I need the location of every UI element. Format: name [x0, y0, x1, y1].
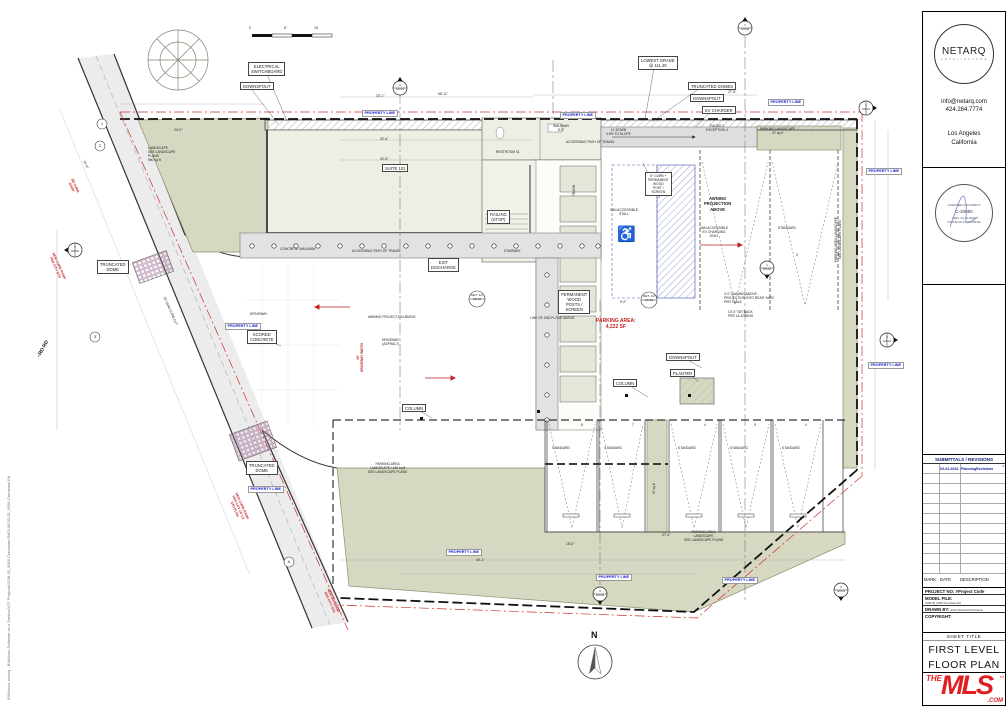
submittal-row-empty	[923, 514, 1005, 524]
firm-state: California	[923, 139, 1005, 147]
label-walkway: WALKWAY 8'-0"	[553, 124, 569, 132]
label-concrete-walkway: CONCRETE WALKWAY	[280, 247, 316, 251]
stall-count-7: 7	[632, 423, 634, 427]
firm-subtitle: A R C H I T E C T U R E	[941, 58, 987, 61]
label-landscape-960: LANDSCAPE SEE LANDSCAPE PLANS 960 sq ft	[148, 146, 175, 162]
mls-com: .COM	[987, 698, 1003, 704]
sheet-title-line1: FIRST LEVEL	[923, 643, 1005, 659]
label-standard-b4: STANDARD	[730, 446, 748, 450]
grid-bubble-1: 1	[98, 121, 106, 126]
firm-box: NETARQ A R C H I T E C T U R E info@neta…	[922, 11, 1006, 169]
label-exit-discharge: EXIT DISCHARGE	[428, 258, 459, 272]
label-parking-landscape-bottom: PARKING AREA LANDSCAPE SEE LANDSCAPE PLA…	[684, 530, 723, 542]
label-property-line-8: PROPERTY LINE	[596, 574, 632, 581]
marker-a402-top: 1 A4.02	[733, 24, 757, 31]
dim-32-5: 32'-5"	[380, 157, 388, 161]
label-property-line-6: PROPERTY LINE	[248, 486, 284, 493]
project-info-box: PROJECT NO: #Project Code MODEL FILE: 21…	[922, 587, 1006, 633]
label-driveway-width: 26' DRIVEWAY WIDTH	[356, 343, 364, 372]
label-downspout-3: DOWNSPOUT	[666, 353, 700, 361]
label-awning-note: 4'-0" AWNING ABOVE : PROJECTION INTO REA…	[724, 292, 774, 304]
drawing-sheet: { "file_path": "BIMcloud: netarq - BIMcl…	[0, 0, 1008, 720]
dim-18-6: 18'-6"	[566, 542, 574, 546]
scale-8: 8'	[284, 26, 286, 30]
submittal-row-empty	[923, 484, 1005, 494]
scale-16: 16'	[314, 26, 318, 30]
label-property-line-3: PROPERTY LINE	[768, 99, 804, 106]
marker-a301b: 3 A3.01	[829, 586, 853, 593]
mls-the: THE	[926, 674, 942, 683]
notes-box	[922, 284, 1006, 456]
submittal-row-empty	[923, 544, 1005, 554]
submittal-row-empty	[923, 494, 1005, 504]
firm-phone: 424.284.7774	[923, 106, 1005, 114]
label-driveway-asphalt: DRIVEWAY (ASPHALT)	[382, 338, 399, 346]
dim-27-8: 27'-8"	[728, 90, 736, 94]
label-line-2nd-floor: LINE OF 2ND FLOOR ABOVE	[530, 316, 575, 320]
label-property-line-1: PROPERTY LINE	[362, 110, 398, 117]
submittal-row-empty	[923, 504, 1005, 514]
stamp-signature	[930, 177, 996, 247]
label-driveway: DRIVEWAY	[250, 312, 267, 316]
marker-a302: 1 A3.02	[63, 246, 87, 253]
dim-40-1: 40'-1"	[476, 558, 484, 562]
label-downspout-1: DOWNSPOUT	[240, 82, 274, 90]
label-truncated-dome-left: TRUNCATED DOME	[97, 260, 129, 274]
marker-det-2: DET. 1/2 A5.12	[465, 294, 489, 301]
label-awning-projection: AWNING PROJECTION ABOVE	[704, 196, 731, 212]
label-truncated-dome-bottom: TRUNCATED DOME	[246, 461, 278, 475]
label-parking-landscape-440: PARKING AREA LANDSCAPE / 440 sq ft SEE L…	[368, 462, 407, 474]
label-trash: TRASH	[572, 185, 576, 196]
firm-name: NETARQ	[942, 46, 986, 57]
stamp-box: LICENSED ARCHITECT C-33080 REN. 12-31-20…	[922, 167, 1006, 285]
label-downspout-2: DOWNSPOUT	[690, 94, 724, 102]
grid-bubble-2: 2	[96, 143, 104, 148]
label-standard-right: STANDARD	[778, 226, 796, 230]
submittals-box: SUBMITTALS / REVISIONS 03-04-2024 Planni…	[922, 454, 1006, 588]
label-stairway: STAIRWAY	[504, 249, 521, 253]
drawn-by-label: DRAWN BY:	[925, 607, 950, 612]
label-lowest-grade: LOWEST GRADE @ 111.40	[638, 56, 678, 70]
label-ev-charger: EV CHARGER	[702, 106, 736, 114]
dim-9-0: 9'-0"	[620, 300, 627, 304]
firm-logo: NETARQ A R C H I T E C T U R E	[934, 24, 994, 84]
label-parking-landscape-vert: PARKING AREA LANDSCAPE SEE LANDSCAPE PLA…	[834, 217, 842, 262]
submittal-date: 03-04-2024	[940, 464, 961, 473]
label-standard-b2: STANDARD	[604, 446, 622, 450]
firm-city: Los Angeles	[923, 130, 1005, 138]
label-standard-b3: STANDARD	[678, 446, 696, 450]
model-file-label: MODEL FILE:	[925, 596, 952, 601]
copyright-label: COPYRIGHT:	[923, 613, 1005, 619]
col-description: DESCRIPTION	[960, 577, 989, 582]
marker-a301: 1 A3.01	[854, 104, 878, 111]
label-property-line-5: PROPERTY LINE	[868, 362, 904, 369]
mls-text: MLS	[941, 670, 992, 701]
label-scored-concrete: SCORED CONCRETE	[247, 330, 277, 344]
col-mark: MARK	[923, 577, 940, 582]
label-property-line-9: PROPERTY LINE	[722, 577, 758, 584]
col-date: DATE	[940, 577, 960, 582]
file-path-text: BIMcloud: netarq - BIMcloud Software as …	[6, 476, 11, 700]
marker-a401: 1 A4.01	[388, 84, 412, 91]
label-down-ramp: 11' DOWN 4.9% TO SLOPE	[606, 128, 631, 136]
label-setback-note: 10'-0" SETBACK PER LA ZONING	[728, 310, 753, 318]
submittal-row-empty	[923, 534, 1005, 544]
grid-bubble-3: 3	[91, 334, 99, 339]
submittal-row-empty	[923, 554, 1005, 564]
grid-bubble-a: A	[285, 559, 293, 564]
label-column-1: COLUMN	[613, 379, 637, 387]
submittal-row: 03-04-2024 PlanningRevisions 1	[923, 464, 1005, 474]
submittal-row-empty	[923, 564, 1005, 574]
label-electrical-switchboard: ELECTRICAL SWITCHBOARD	[248, 62, 285, 76]
marker-a502: 1 A5.02	[755, 264, 779, 271]
label-property-line-10: PROPERTY LINE	[225, 323, 261, 330]
revision-mark: 1	[1002, 464, 1004, 468]
model-file-value: 2108.00_5066 Crenshaw Rd	[925, 601, 1003, 605]
dim-66-11: 66'-11"	[438, 92, 448, 96]
sheet-title-box: SHEET TITLE FIRST LEVEL FLOOR PLAN	[922, 632, 1006, 674]
stall-count-4: 4	[704, 423, 706, 427]
label-column-2: COLUMN	[402, 404, 426, 412]
submittal-row-empty	[923, 524, 1005, 534]
dim-47-4: 47'-4"	[662, 533, 670, 537]
label-standard-b1: STANDARD	[552, 446, 570, 450]
marker-det-1: DET. 1/2 A5.12	[637, 295, 661, 302]
marker-a402-bottom: 1 A4.02	[588, 590, 612, 597]
label-parking-area: PARKING AREA: 4,222 SF	[596, 318, 636, 331]
label-exception-note: F/A 200.1 EXCEPTION 4	[706, 124, 728, 132]
stall-count-8: 8	[581, 423, 583, 427]
stall-count-5: 5	[754, 423, 756, 427]
dim-32-6: 32'-6"	[380, 137, 388, 141]
label-permanent-wood: PERMANENT WOOD POSTS / SCREEN	[558, 290, 590, 314]
label-truncated-domes: TRUNCATED DOMES	[688, 82, 736, 90]
label-property-line-7: PROPERTY LINE	[446, 549, 482, 556]
label-restroom: RESTROOM 01	[496, 150, 520, 154]
architect-stamp: LICENSED ARCHITECT C-33080 REN. 12-31-20…	[935, 184, 993, 242]
scale-0: 0	[249, 26, 251, 30]
floor-plan-canvas	[0, 0, 920, 720]
label-property-line-2: PROPERTY LINE	[560, 112, 596, 119]
label-curb-screen: 6" CURB + PERMANENT WOOD POST / SCREEN	[645, 172, 672, 196]
mls-tm: TM	[1000, 675, 1004, 679]
label-railing-stop: RAILING (STOP)	[487, 210, 510, 224]
dim-24-0: 24'-0"	[174, 128, 182, 132]
label-van-stall: VAN ACCESSIBLE STALL	[610, 208, 638, 216]
firm-email: info@netarq.com	[923, 98, 1005, 106]
stall-count-3: 3	[796, 253, 798, 257]
title-block: NETARQ A R C H I T E C T U R E info@neta…	[922, 12, 1006, 706]
label-accessible-path-1: ACCESSIBLE PATH OF TRAVEL	[566, 140, 615, 144]
label-standard-b5: STANDARD	[782, 446, 800, 450]
label-suite-101: SUITE 101	[382, 164, 408, 172]
project-no: PROJECT NO: #Project Code	[923, 588, 1005, 595]
submittal-desc: PlanningRevisions	[961, 467, 993, 471]
marker-a401b: 2 A4.01	[875, 336, 899, 343]
stall-count-4b: 4	[805, 423, 807, 427]
label-parking-landscape-37: PARKING LANDSCAPE 37 sq ft	[760, 127, 795, 135]
drawn-by-value: #Ord Technical Full Name	[951, 608, 983, 612]
north-label: N	[591, 630, 598, 640]
label-property-line-4: PROPERTY LINE	[866, 168, 902, 175]
accessible-parking-icon: ♿	[617, 227, 636, 242]
label-planter: PLANTER	[670, 369, 695, 377]
mls-logo: THE MLS TM .COM	[922, 672, 1006, 706]
submittal-row-empty	[923, 474, 1005, 484]
label-awning-inline: AWNING PROJECTION ABOVE	[368, 315, 416, 319]
label-accessible-path-2: ACCESSIBLE PATH OF TRAVEL	[352, 249, 401, 253]
submittals-header: SUBMITTALS / REVISIONS	[923, 455, 1005, 464]
sheet-title-label: SHEET TITLE	[923, 633, 1005, 641]
label-van-ev: VAN ACCESSIBLE EV CHARGING ONLY	[700, 226, 728, 238]
label-27sqft: 27 sq ft	[652, 483, 656, 494]
dim-33-1: 33'-1"	[376, 94, 384, 98]
